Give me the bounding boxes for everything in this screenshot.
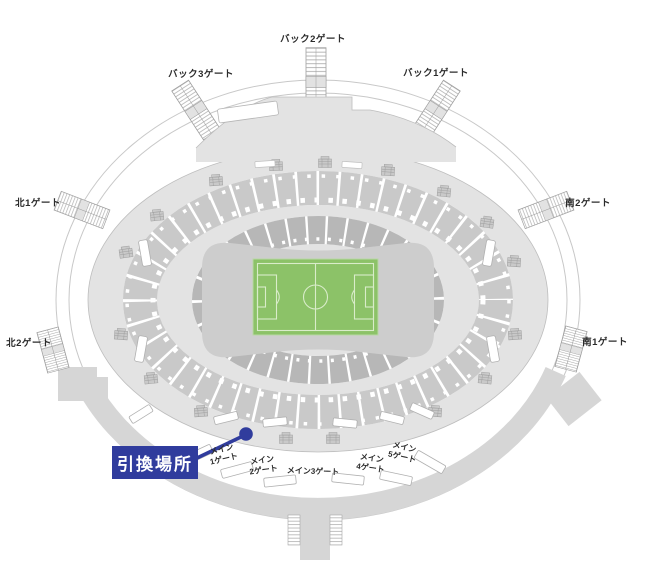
corridor-stairs-right: [330, 515, 342, 545]
marker-dot: [239, 427, 253, 441]
stadium-map-graphic: [0, 0, 650, 585]
corridor-stairs-left: [288, 515, 300, 545]
exchange-point-label: 引換場所: [112, 446, 198, 479]
gate-label-south2: 南2ゲート: [565, 195, 611, 209]
stadium-gate-map: バック2ゲート バック3ゲート バック1ゲート 北1ゲート 南2ゲート 北2ゲー…: [0, 0, 650, 585]
gate-label-north1: 北1ゲート: [15, 195, 61, 209]
soccer-pitch: [253, 259, 378, 335]
gate-label-main3: メイン3ゲート: [287, 466, 340, 478]
gate-label-main2: メイン2ゲート: [247, 454, 278, 479]
south-corridor: [300, 504, 330, 560]
gate-label-back2: バック2ゲート: [280, 31, 346, 45]
gate-label-back1: バック1ゲート: [403, 65, 469, 79]
gate-label-south1: 南1ゲート: [582, 334, 628, 348]
gate-label-back3: バック3ゲート: [168, 66, 234, 80]
gate-label-main4: メイン4ゲート: [355, 452, 386, 477]
gate-label-north2: 北2ゲート: [6, 335, 52, 349]
